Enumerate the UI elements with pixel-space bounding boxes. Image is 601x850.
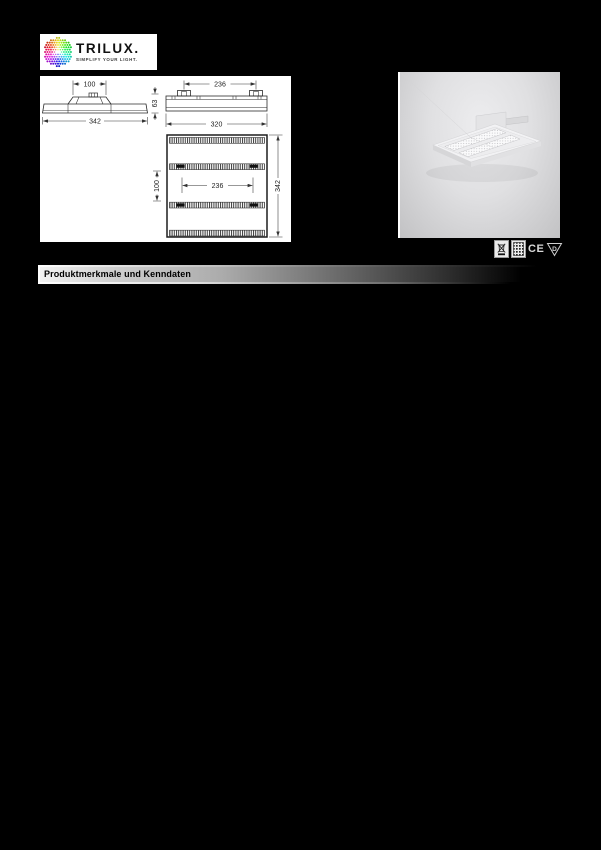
- dimension-drawings-svg: 100 342 63 236 320 236 100 342: [40, 76, 291, 242]
- section-title: Produktmerkmale und Kenndaten: [40, 269, 191, 279]
- grid-pattern-icon: [511, 240, 526, 258]
- dimension-drawings: 100 342 63 236 320 236 100 342: [40, 76, 291, 242]
- section-header-bar: Produktmerkmale und Kenndaten: [38, 265, 563, 284]
- dim-height: 63: [152, 100, 159, 108]
- bar-bottom-highlight: [38, 282, 563, 284]
- weee-crossed-bin-icon: [494, 240, 509, 258]
- dimension-labels: 100 342 63 236 320 236 100 342: [84, 81, 282, 191]
- ce-mark: CE: [528, 241, 544, 257]
- dim-front-overall-width: 342: [89, 118, 101, 125]
- logo-text-block: TRILUX. SIMPLIFY YOUR LIGHT.: [76, 42, 140, 62]
- certification-icons: CE D: [494, 240, 563, 258]
- soft-shadow: [426, 164, 538, 182]
- trilux-dot-sphere-icon: [42, 36, 74, 68]
- front-view-outline: [43, 93, 148, 113]
- dim-front-top-width: 100: [84, 81, 96, 88]
- triangle-d-mark: D: [546, 241, 563, 257]
- triangle-d-letter: D: [552, 246, 557, 253]
- logo-tagline-text: SIMPLIFY YOUR LIGHT.: [76, 57, 140, 62]
- dim-plan-row-spacing: 100: [154, 180, 161, 192]
- luminaire-illustration: [400, 72, 560, 238]
- bar-gradient: Produktmerkmale und Kenndaten: [38, 267, 563, 282]
- end-view-outline: [166, 91, 267, 112]
- datasheet-page: { "page": { "background_color": "#000000…: [0, 0, 601, 850]
- logo-brand-text: TRILUX.: [76, 42, 140, 55]
- dim-plan-inner-width: 236: [212, 183, 224, 190]
- dim-plan-overall-length: 342: [275, 180, 282, 192]
- dim-end-top-width: 236: [214, 81, 226, 88]
- trilux-logo: TRILUX. SIMPLIFY YOUR LIGHT.: [40, 34, 157, 70]
- product-photo: [398, 72, 560, 238]
- dim-end-overall-width: 320: [211, 121, 223, 128]
